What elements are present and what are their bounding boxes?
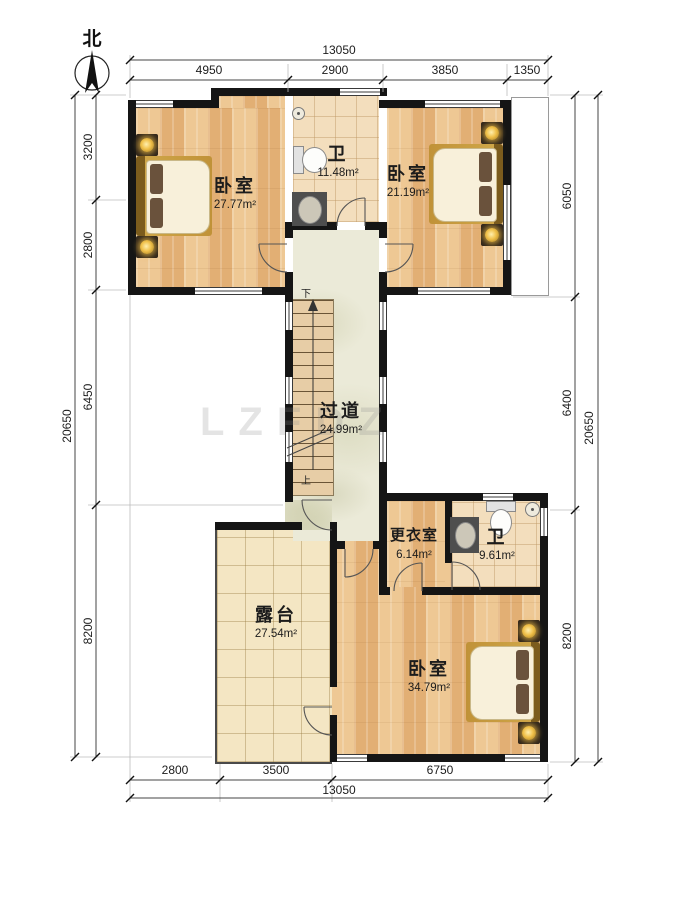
room-label-bedroom-top-right: 卧室 21.19m² xyxy=(358,164,458,200)
dim-right-seg: 6400 xyxy=(560,373,574,433)
window xyxy=(425,100,500,108)
window xyxy=(136,100,173,108)
pillow xyxy=(516,684,529,714)
room-area: 27.54m² xyxy=(226,627,326,641)
wall xyxy=(445,587,548,595)
nightstand xyxy=(136,134,158,156)
pillow xyxy=(479,186,492,216)
dim-right-seg: 6050 xyxy=(560,166,574,226)
pillow xyxy=(150,164,163,194)
window xyxy=(418,287,490,295)
room-name: 卧室 xyxy=(185,176,285,196)
window xyxy=(379,302,387,330)
lamp-icon xyxy=(485,228,499,242)
window xyxy=(483,493,513,501)
dim-top-seg: 1350 xyxy=(497,63,557,77)
pillow xyxy=(516,650,529,680)
window xyxy=(340,88,380,96)
staircase xyxy=(293,300,333,495)
window xyxy=(337,754,367,762)
room-name: 卫 xyxy=(288,144,388,164)
nightstand xyxy=(518,722,540,744)
wall xyxy=(540,595,548,762)
room-label-bathroom-bottom: 卫 9.61m² xyxy=(447,527,547,563)
sink xyxy=(292,192,327,226)
pillow xyxy=(479,152,492,182)
room-name: 卧室 xyxy=(358,164,458,184)
wall xyxy=(379,230,387,238)
lamp-icon xyxy=(485,126,499,140)
lamp-icon xyxy=(140,138,154,152)
nightstand xyxy=(481,122,503,144)
floor-terrace xyxy=(215,522,332,764)
dim-bottom-seg: 3500 xyxy=(246,763,306,777)
dim-left-overall: 20650 xyxy=(60,396,74,456)
room-name: 卧室 xyxy=(379,659,479,679)
wall xyxy=(379,587,390,595)
window xyxy=(503,185,511,260)
sink-basin xyxy=(298,196,322,224)
wall xyxy=(215,522,302,530)
dim-top-seg: 4950 xyxy=(179,63,239,77)
dim-bottom-overall: 13050 xyxy=(309,783,369,797)
wall xyxy=(365,222,387,230)
nightstand xyxy=(518,620,540,642)
lamp-icon xyxy=(522,624,536,638)
dim-bottom-seg: 2800 xyxy=(145,763,205,777)
dim-right-seg: 8200 xyxy=(560,606,574,666)
room-area: 34.79m² xyxy=(379,681,479,695)
dim-top-seg: 3850 xyxy=(415,63,475,77)
dim-right-overall: 20650 xyxy=(582,398,596,458)
drain-icon xyxy=(292,107,305,120)
room-area: 9.61m² xyxy=(447,549,547,563)
room-label-bedroom-bottom: 卧室 34.79m² xyxy=(379,659,479,695)
room-area: 24.99m² xyxy=(291,423,391,437)
lamp-icon xyxy=(140,240,154,254)
dim-top-seg: 2900 xyxy=(305,63,365,77)
floor-plan: 北 LZFDZ 卧室 27.77m² 卫 11.48m² 卧室 21.19m² … xyxy=(0,0,675,900)
nightstand xyxy=(481,224,503,246)
wall xyxy=(330,541,345,549)
room-area: 21.19m² xyxy=(358,186,458,200)
lamp-icon xyxy=(522,726,536,740)
floor-bedroom-top-left-notch xyxy=(219,96,285,108)
eave-outline xyxy=(511,97,549,296)
room-name: 露台 xyxy=(226,605,326,625)
north-arrow-icon xyxy=(75,50,109,93)
dim-top-overall: 13050 xyxy=(309,43,369,57)
dim-bottom-seg: 6750 xyxy=(410,763,470,777)
dim-left-seg: 2800 xyxy=(81,215,95,275)
wall xyxy=(379,493,548,501)
wall xyxy=(285,230,293,238)
room-name: 卫 xyxy=(447,527,547,547)
dim-left-seg: 6450 xyxy=(81,367,95,427)
north-label: 北 xyxy=(78,24,106,51)
shower-icon xyxy=(525,502,540,517)
room-label-terrace: 露台 27.54m² xyxy=(226,605,326,641)
window xyxy=(285,302,293,330)
window xyxy=(195,287,262,295)
dim-left-seg: 8200 xyxy=(81,601,95,661)
room-label-corridor: 过道 24.99m² xyxy=(291,401,391,437)
stair-down-label: 下 xyxy=(297,285,315,300)
room-label-bedroom-top-left: 卧室 27.77m² xyxy=(185,176,285,212)
window xyxy=(505,754,540,762)
nightstand xyxy=(136,236,158,258)
room-name: 过道 xyxy=(291,401,391,421)
pillow xyxy=(150,198,163,228)
room-area: 27.77m² xyxy=(185,198,285,212)
stair-up-label: 上 xyxy=(297,472,315,487)
dim-left-seg: 3200 xyxy=(81,117,95,177)
wall xyxy=(128,100,136,295)
